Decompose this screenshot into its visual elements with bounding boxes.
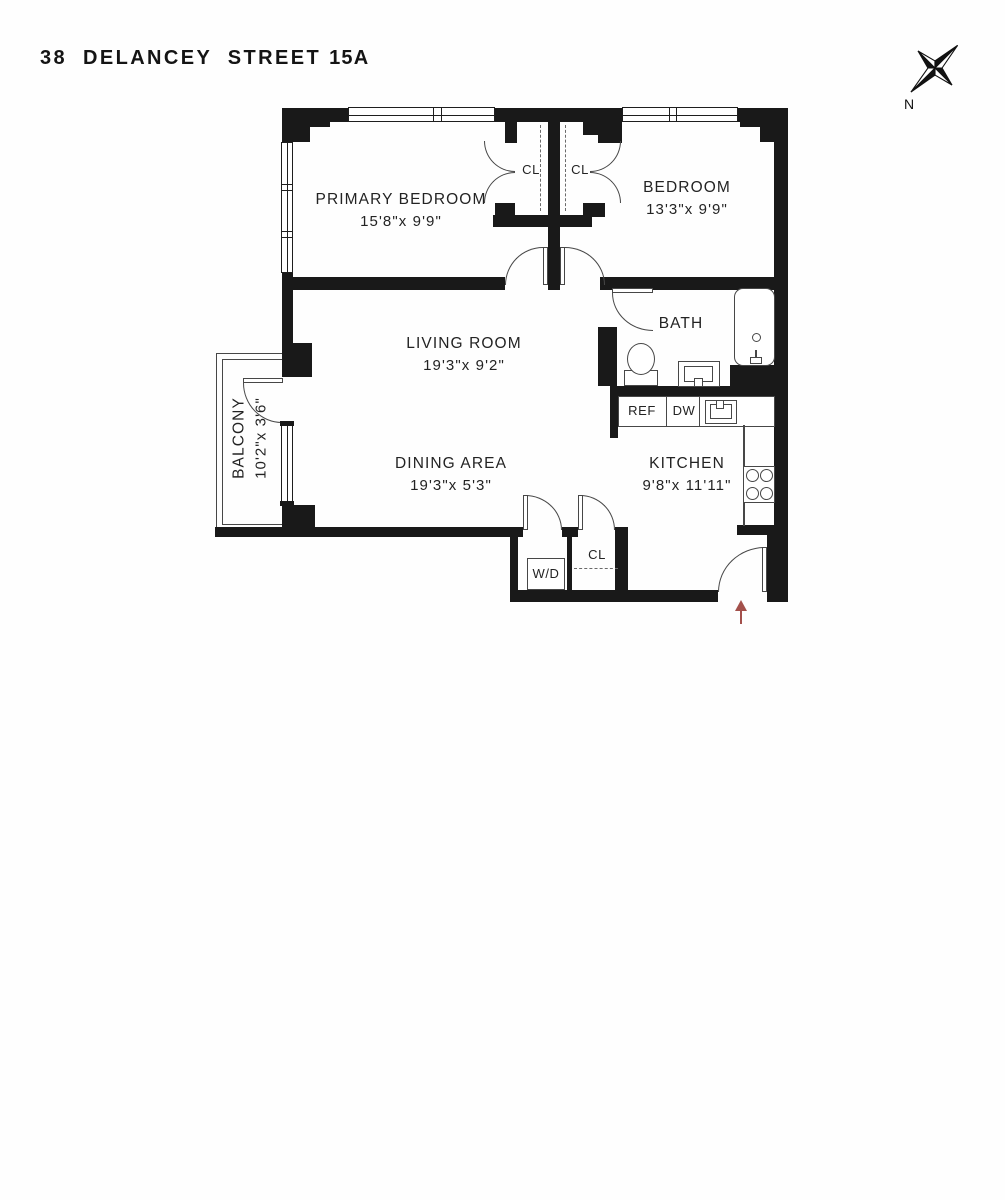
wall-segment [730, 365, 788, 396]
door-leaf [578, 495, 583, 530]
door-leaf [560, 247, 565, 285]
window [281, 142, 293, 273]
closet-label: CL [571, 162, 589, 177]
door-swing-arc [525, 495, 562, 530]
window-mullion [282, 190, 292, 191]
closet-rod-dashed [565, 125, 566, 211]
room-name: DINING AREA [395, 455, 507, 473]
room-name: PRIMARY BEDROOM [316, 191, 487, 209]
door-leaf [523, 495, 528, 530]
wall-segment [598, 121, 622, 143]
wall-segment [282, 343, 312, 377]
room-dimensions: 9'8"x 11'11" [642, 477, 731, 494]
door-leaf [612, 288, 653, 293]
wall-segment [215, 527, 523, 537]
closet-label: CL [588, 547, 606, 562]
bathroom-sink-drain [694, 378, 703, 387]
wall-segment [617, 386, 737, 396]
window [622, 107, 738, 122]
door-swing-arc [580, 495, 615, 530]
room-dimensions: 15'8"x 9'9" [316, 213, 487, 230]
bathtub-drain [752, 333, 761, 342]
north-label: N [904, 96, 914, 112]
room-label-primary-bedroom: PRIMARY BEDROOM 15'8"x 9'9" [316, 191, 487, 230]
burner [746, 469, 759, 482]
door-swing-arc [718, 547, 765, 592]
window-end-cap [280, 501, 294, 506]
room-label-bedroom: BEDROOM 13'3"x 9'9" [643, 179, 731, 218]
wall-segment [562, 527, 578, 537]
window-end-cap [280, 421, 294, 426]
washer-dryer-label: W/D [532, 566, 559, 581]
wall-segment [282, 277, 505, 290]
window-glass-line [349, 115, 494, 116]
wall-segment [548, 121, 560, 290]
page-title: 38 DELANCEY STREET15A [40, 47, 369, 70]
room-label-dining-area: DINING AREA 19'3"x 5'3" [395, 455, 507, 494]
room-dimensions: 19'3"x 9'2" [406, 357, 521, 374]
door-swing-arc [612, 293, 653, 331]
wall-segment [495, 203, 515, 217]
door-leaf [543, 247, 548, 285]
refrigerator-label: REF [628, 403, 656, 418]
window-mullion [282, 237, 292, 238]
room-name: KITCHEN [642, 455, 731, 473]
door-swing-arc [484, 172, 515, 203]
room-name: BATH [659, 315, 704, 333]
door-swing-arc [590, 172, 621, 203]
closet-rod-dashed [540, 125, 541, 211]
window-mullion [441, 108, 442, 121]
burner [760, 487, 773, 500]
wall-segment [495, 108, 622, 122]
window-glass-line [287, 143, 288, 272]
door-swing-arc [505, 247, 543, 285]
room-name: LIVING ROOM [406, 335, 521, 353]
window-mullion [433, 108, 434, 121]
window-glass-line [287, 424, 288, 504]
window-mullion [282, 231, 292, 232]
window-mullion [676, 108, 677, 121]
window [348, 107, 495, 122]
room-label-kitchen: KITCHEN 9'8"x 11'11" [642, 455, 731, 494]
wall-segment [767, 535, 788, 602]
room-label-living-room: LIVING ROOM 19'3"x 9'2" [406, 335, 521, 374]
room-label-balcony: BALCONY 10'2"x 3'6" [231, 397, 270, 479]
burner [746, 487, 759, 500]
window-mullion [282, 184, 292, 185]
door-swing-arc [484, 141, 515, 172]
bathtub-faucet-stem [755, 350, 757, 357]
closet-label: CL [522, 162, 540, 177]
room-dimensions: 13'3"x 9'9" [643, 201, 731, 218]
door-swing-arc [590, 141, 621, 172]
floor-plan-page: 38 DELANCEY STREET15A N [0, 0, 1005, 1200]
window-glass-line [623, 115, 737, 116]
address-text: 38 DELANCEY STREET [40, 47, 321, 69]
room-label-bath: BATH [659, 315, 704, 333]
closet-rod-dashed [574, 568, 618, 569]
wall-segment [510, 590, 718, 602]
wall-segment [282, 108, 310, 142]
bathtub-faucet [750, 357, 762, 364]
wall-segment [505, 121, 517, 143]
wall-segment [737, 525, 788, 535]
burner [760, 469, 773, 482]
room-dimensions: 19'3"x 5'3" [395, 477, 507, 494]
door-leaf [762, 547, 767, 592]
toilet-bowl [627, 343, 655, 375]
kitchen-sink-faucet [716, 400, 724, 409]
entry-arrow-stem [740, 610, 742, 624]
room-name: BALCONY [231, 397, 249, 479]
room-dimensions: 10'2"x 3'6" [253, 397, 270, 479]
window [281, 423, 293, 505]
room-name: BEDROOM [643, 179, 731, 197]
door-swing-arc [565, 247, 605, 285]
wall-segment [583, 203, 605, 217]
wall-segment [598, 327, 617, 386]
dishwasher-label: DW [673, 403, 696, 418]
window-mullion [669, 108, 670, 121]
unit-text: 15A [329, 47, 369, 69]
